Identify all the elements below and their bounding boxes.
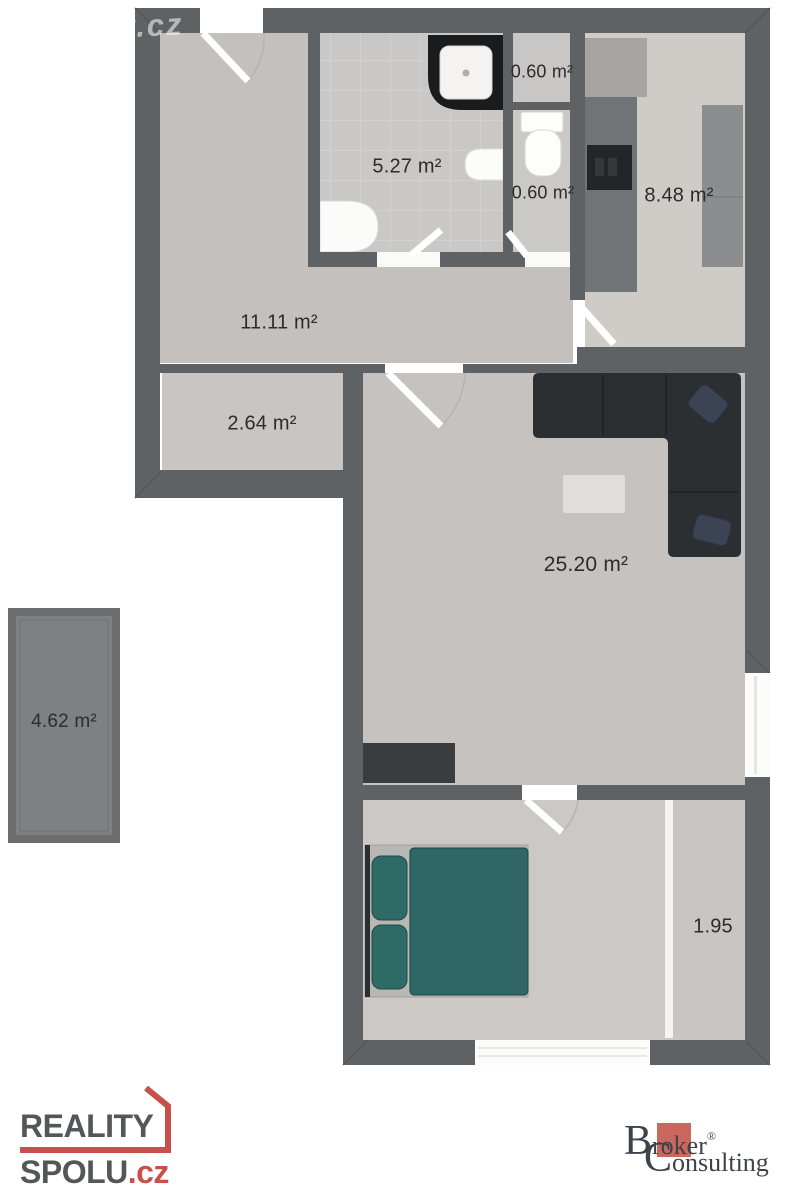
wall <box>308 252 377 267</box>
door-threshold <box>525 252 570 267</box>
reality-spolu-word2: SPOLU.cz <box>20 1156 169 1188</box>
washbasin-icon <box>320 201 378 252</box>
room-label-wc: 0.60 m² <box>512 183 574 204</box>
wall <box>343 1040 475 1065</box>
broker-consulting-line2: Consulting <box>644 1136 769 1189</box>
wall <box>263 8 770 33</box>
floor-plan-page: 11.11 m² 5.27 m² 0.60 m² 0.60 m² 8.48 m²… <box>0 0 800 1200</box>
reality-spolu-word1: REALITY <box>20 1110 153 1142</box>
door-threshold <box>377 252 440 267</box>
room-label-hallway: 11.11 m² <box>240 312 318 335</box>
room-label-kitchen: 8.48 m² <box>644 185 713 208</box>
room-label-closet-top: 0.60 m² <box>511 62 573 83</box>
stove-detail <box>608 158 617 176</box>
coffee-table-icon <box>563 475 625 513</box>
toilet-icon <box>525 130 561 176</box>
wall <box>440 252 525 267</box>
wall <box>135 470 363 498</box>
watermark-text: y.cz <box>117 6 184 45</box>
reality-spolu-word2-text: SPOLU <box>20 1154 128 1190</box>
stove-detail <box>595 158 604 176</box>
window-icon <box>475 1040 650 1065</box>
wall <box>363 785 522 800</box>
tv-stand-icon <box>363 743 455 783</box>
consulting-c: C <box>644 1135 672 1181</box>
floor-plan-drawing <box>0 0 800 1200</box>
room-label-living-room: 25.20 m² <box>544 553 628 577</box>
reality-spolu-logo: REALITY SPOLU.cz <box>18 1086 198 1191</box>
kitchen-counter-icon <box>585 97 637 292</box>
wall <box>348 364 385 373</box>
wall <box>135 8 160 498</box>
wall <box>343 364 363 1065</box>
bed-pillow-icon <box>372 925 407 989</box>
wall <box>577 785 745 800</box>
reality-spolu-tld: .cz <box>128 1154 169 1190</box>
room-label-storage: 2.64 m² <box>227 413 296 436</box>
window-glass <box>478 1047 647 1049</box>
window-glass <box>754 676 757 774</box>
window-glass <box>478 1055 647 1057</box>
shower-drain <box>463 70 470 77</box>
wall <box>745 777 770 1065</box>
partition <box>665 800 673 1038</box>
bed-pillow-icon <box>372 856 407 920</box>
room-label-wardrobe: 1.95 <box>693 916 733 939</box>
fridge-cabinet-icon <box>585 38 647 97</box>
sink-icon <box>465 149 503 180</box>
room-label-bathroom: 5.27 m² <box>372 156 441 179</box>
wall <box>745 8 770 673</box>
toilet-tank <box>521 112 563 132</box>
wall <box>650 1040 770 1065</box>
window-icon <box>745 673 770 777</box>
wall <box>160 364 348 373</box>
wall <box>577 347 745 373</box>
bed-duvet <box>410 848 528 995</box>
wall <box>308 33 320 252</box>
bed-headboard <box>365 845 370 997</box>
consulting-rest: onsulting <box>672 1148 769 1177</box>
wall <box>463 364 577 373</box>
room-label-balcony: 4.62 m² <box>31 711 97 733</box>
broker-consulting-logo: Broker® Consulting <box>622 1118 800 1190</box>
wall <box>513 102 570 110</box>
